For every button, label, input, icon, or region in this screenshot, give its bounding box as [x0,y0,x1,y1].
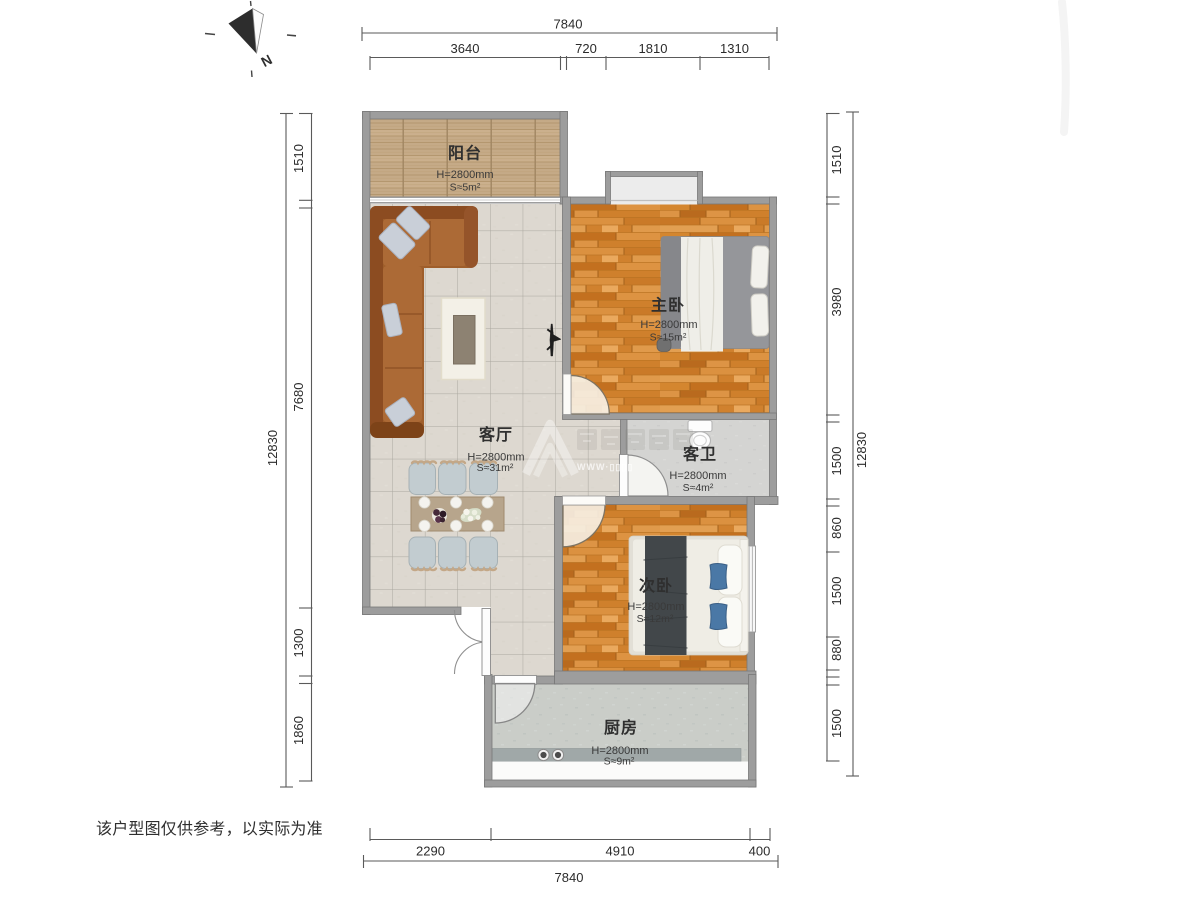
svg-text:1810: 1810 [639,41,668,56]
svg-text:H=2800mm: H=2800mm [627,601,684,613]
svg-text:H=2800mm: H=2800mm [640,319,697,331]
svg-text:S≈9m²: S≈9m² [604,756,635,768]
svg-text:7840: 7840 [554,17,583,32]
svg-text:12830: 12830 [265,430,280,466]
svg-text:客卫: 客卫 [683,445,717,464]
svg-text:客厅: 客厅 [479,425,513,444]
svg-text:3980: 3980 [829,288,844,317]
svg-text:1500: 1500 [829,577,844,606]
svg-text:S≈4m²: S≈4m² [683,482,714,494]
svg-text:1300: 1300 [291,629,306,658]
svg-text:3640: 3640 [451,41,480,56]
svg-text:7840: 7840 [555,870,584,885]
svg-text:WWW·▯▯▯▯: WWW·▯▯▯▯ [577,462,633,472]
svg-text:阳台: 阳台 [448,144,482,163]
svg-text:S≈5m²: S≈5m² [450,182,481,194]
svg-text:H=2800mm: H=2800mm [669,470,726,482]
svg-text:1510: 1510 [291,144,306,173]
svg-text:次卧: 次卧 [639,576,673,595]
svg-text:7680: 7680 [291,383,306,412]
svg-text:880: 880 [829,639,844,661]
svg-text:860: 860 [829,517,844,539]
svg-text:1510: 1510 [829,146,844,175]
svg-text:720: 720 [575,41,597,56]
svg-text:1500: 1500 [829,709,844,738]
svg-text:S≈31m²: S≈31m² [477,462,514,474]
svg-text:主卧: 主卧 [651,296,685,315]
svg-text:H=2800mm: H=2800mm [436,169,493,181]
svg-text:4910: 4910 [606,844,635,859]
svg-text:1310: 1310 [720,41,749,56]
svg-text:1860: 1860 [291,716,306,745]
svg-text:2290: 2290 [416,844,445,859]
svg-text:12830: 12830 [854,432,869,468]
svg-text:S≈12m²: S≈12m² [637,613,674,625]
svg-text:400: 400 [749,844,771,859]
svg-text:1500: 1500 [829,447,844,476]
svg-text:厨房: 厨房 [604,718,638,737]
svg-text:S≈15m²: S≈15m² [650,332,687,344]
svg-text:该户型图仅供参考，以实际为准: 该户型图仅供参考，以实际为准 [96,820,323,838]
